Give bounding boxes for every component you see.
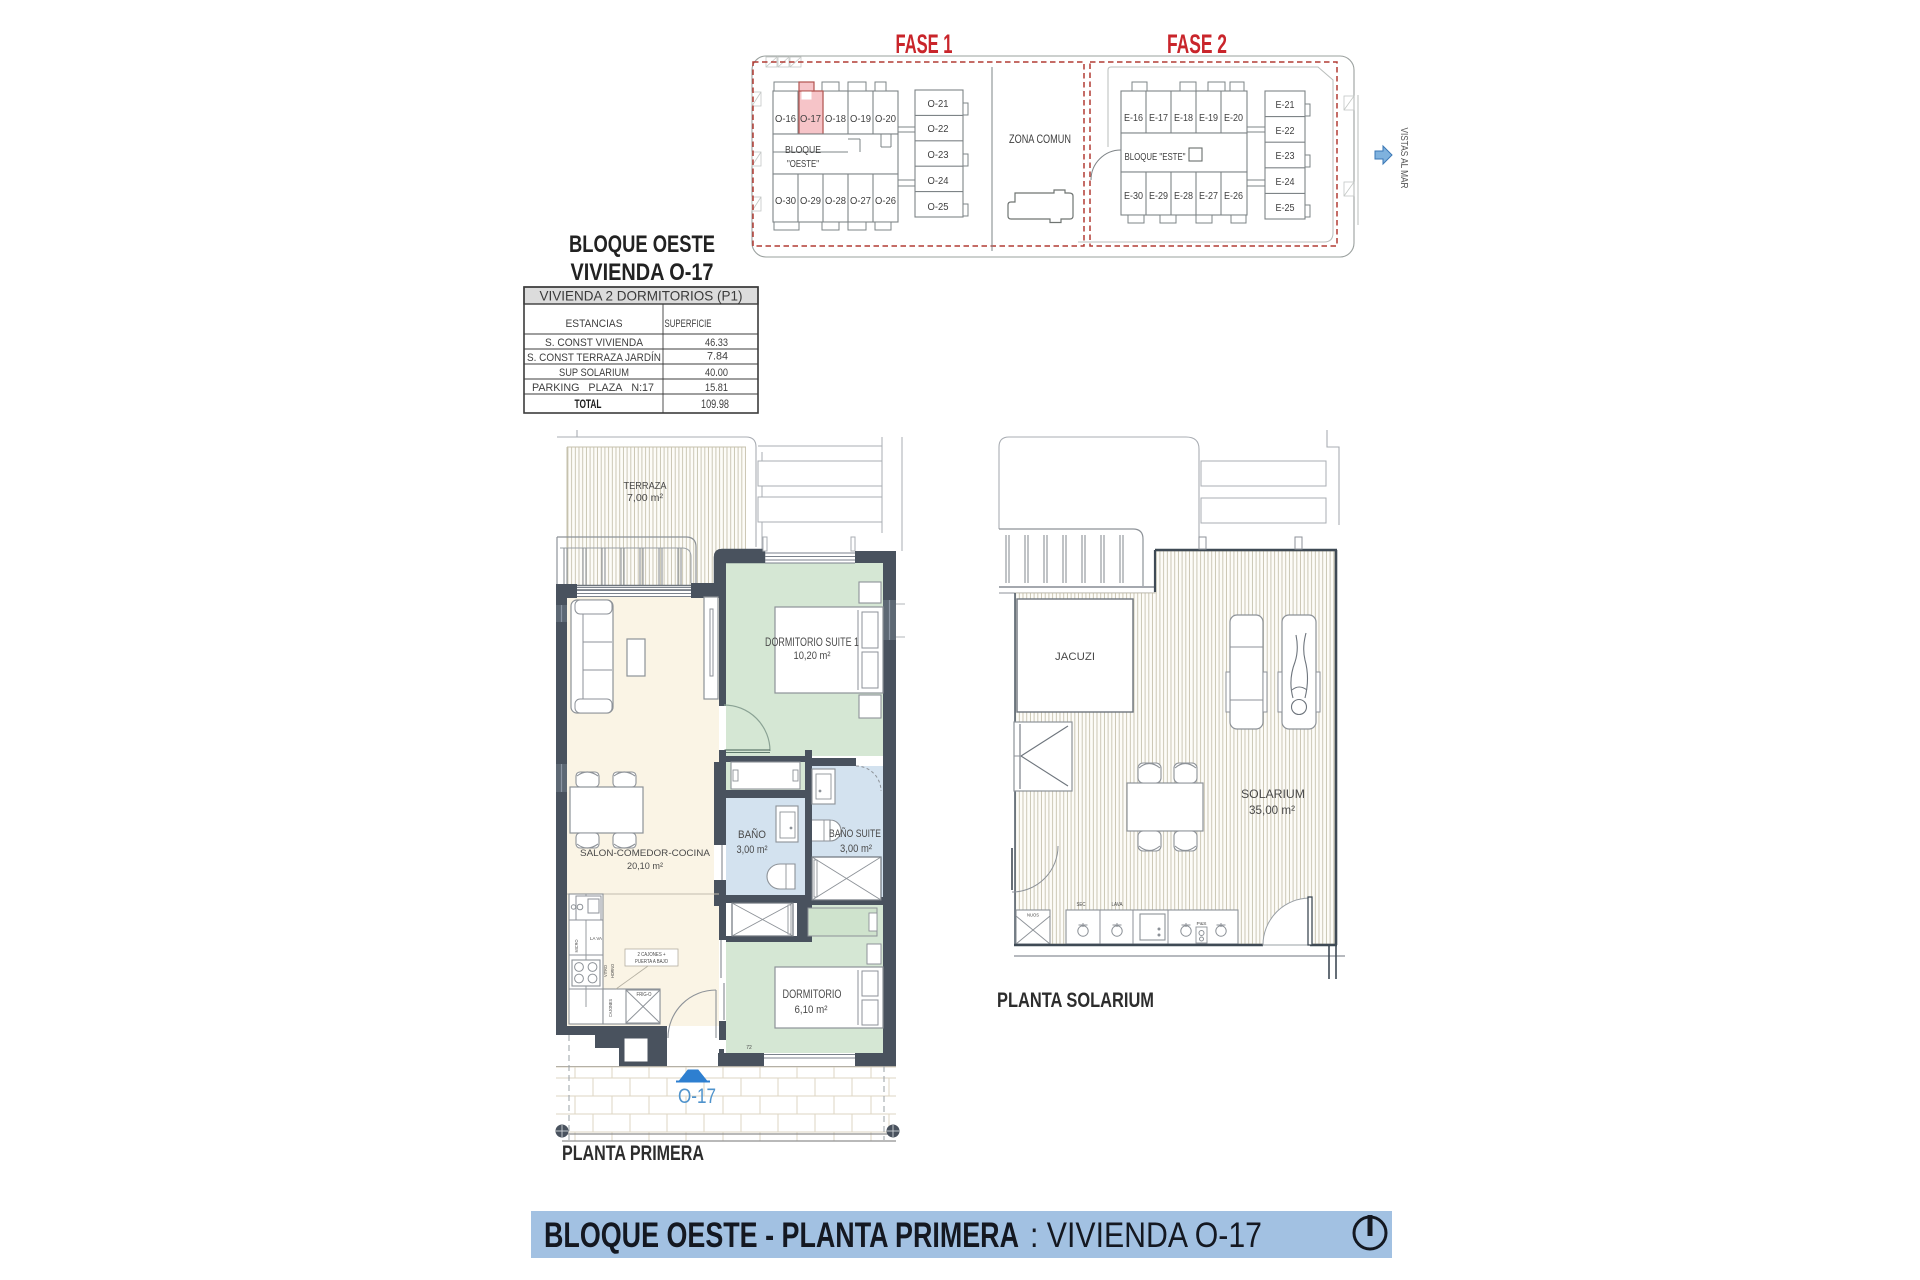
svg-text:3,00 m²: 3,00 m²: [840, 843, 872, 855]
svg-text:E-26: E-26: [1224, 191, 1243, 202]
svg-text:O-19: O-19: [850, 114, 871, 125]
svg-text:E-29: E-29: [1149, 191, 1168, 202]
svg-text:E-30: E-30: [1124, 191, 1143, 202]
svg-text:2 CAJONES +: 2 CAJONES +: [638, 952, 666, 958]
svg-text:E-18: E-18: [1174, 113, 1193, 124]
svg-text:"OESTE": "OESTE": [787, 158, 819, 170]
svg-text:PARKING PLAZA N:17: PARKING PLAZA N:17: [532, 382, 654, 394]
svg-text:E-21: E-21: [1276, 100, 1295, 111]
svg-text:O-29: O-29: [800, 196, 821, 207]
svg-text:E-25: E-25: [1276, 203, 1295, 214]
svg-text:O-24: O-24: [928, 176, 949, 187]
svg-text:JACUZI: JACUZI: [1055, 651, 1095, 663]
svg-text:BAÑO: BAÑO: [738, 828, 766, 841]
svg-text:7.84: 7.84: [707, 351, 728, 363]
svg-text:PUERTA A BAJO: PUERTA A BAJO: [635, 959, 668, 965]
svg-text:E-20: E-20: [1224, 113, 1243, 124]
svg-text:LA VA: LA VA: [590, 936, 603, 942]
svg-text:O-23: O-23: [928, 150, 949, 161]
svg-text:40.00: 40.00: [705, 367, 728, 379]
svg-text:O-16: O-16: [775, 114, 796, 125]
svg-text:109.98: 109.98: [701, 397, 729, 411]
svg-text:VITRO: VITRO: [603, 965, 609, 977]
svg-text:E-19: E-19: [1199, 113, 1218, 124]
svg-text:O-25: O-25: [928, 202, 949, 213]
svg-text:ZONA COMUN: ZONA COMUN: [1009, 134, 1071, 146]
svg-text:FASE 1: FASE 1: [896, 29, 953, 59]
svg-text:O-21: O-21: [928, 99, 949, 110]
svg-text:DORMITORIO: DORMITORIO: [783, 987, 842, 1001]
svg-text:E-27: E-27: [1199, 191, 1218, 202]
svg-text:E-17: E-17: [1149, 113, 1168, 124]
svg-text:BLOQUE: BLOQUE: [785, 144, 821, 156]
svg-text:MICRO: MICRO: [574, 939, 580, 952]
svg-text:SUPERFICIE: SUPERFICIE: [665, 318, 712, 330]
svg-text:LAVA: LAVA: [1112, 902, 1124, 908]
svg-text:FRIG-O: FRIG-O: [637, 992, 652, 998]
svg-text:CAJONES: CAJONES: [608, 999, 614, 1017]
svg-text:DORMITORIO SUITE 1: DORMITORIO SUITE 1: [765, 635, 859, 649]
svg-text:46.33: 46.33: [705, 337, 728, 349]
svg-text:SEC: SEC: [1077, 902, 1086, 908]
svg-text:BLOQUE "ESTE": BLOQUE "ESTE": [1125, 151, 1186, 163]
svg-text:NUOS: NUOS: [1027, 913, 1039, 919]
svg-text:72: 72: [746, 1045, 752, 1051]
svg-text:35,00 m²: 35,00 m²: [1249, 803, 1295, 817]
svg-text:: VIVIENDA O-17: : VIVIENDA O-17: [1030, 1216, 1262, 1255]
svg-text:6,10 m²: 6,10 m²: [795, 1004, 828, 1016]
svg-text:E-23: E-23: [1276, 151, 1295, 162]
svg-text:7,00 m²: 7,00 m²: [627, 493, 664, 504]
svg-text:BLOQUE OESTE - PLANTA PRIMERA: BLOQUE OESTE - PLANTA PRIMERA: [544, 1216, 1019, 1255]
svg-text:O-27: O-27: [850, 196, 871, 207]
svg-text:BAÑO SUITE: BAÑO SUITE: [829, 827, 881, 840]
svg-text:O-17: O-17: [678, 1085, 716, 1108]
svg-text:O-30: O-30: [775, 196, 796, 207]
svg-text:E-24: E-24: [1276, 177, 1295, 188]
svg-text:SOLARIUM: SOLARIUM: [1241, 787, 1305, 801]
svg-text:O-28: O-28: [825, 196, 846, 207]
svg-text:E-16: E-16: [1124, 113, 1143, 124]
svg-text:E-22: E-22: [1276, 126, 1295, 137]
svg-text:HORNO: HORNO: [610, 964, 616, 978]
svg-text:VIVIENDA O-17: VIVIENDA O-17: [571, 259, 714, 286]
svg-text:E-28: E-28: [1174, 191, 1193, 202]
svg-text:VIVIENDA 2 DORMITORIOS (P1): VIVIENDA 2 DORMITORIOS (P1): [540, 288, 743, 304]
svg-text:PLANTA PRIMERA: PLANTA PRIMERA: [562, 1142, 704, 1165]
svg-text:SUP SOLARIUM: SUP SOLARIUM: [559, 367, 629, 379]
svg-text:O-22: O-22: [928, 124, 949, 135]
svg-text:O-17: O-17: [800, 114, 821, 125]
svg-text:FASE 2: FASE 2: [1167, 29, 1227, 59]
svg-text:20,10 m²: 20,10 m²: [627, 861, 663, 872]
svg-text:BLOQUE OESTE: BLOQUE OESTE: [569, 231, 715, 258]
svg-text:SALON-COMEDOR-COCINA: SALON-COMEDOR-COCINA: [580, 848, 711, 859]
svg-text:VISTAS AL MAR: VISTAS AL MAR: [1398, 128, 1409, 189]
svg-text:PLANTA SOLARIUM: PLANTA SOLARIUM: [997, 989, 1154, 1012]
svg-text:O-26: O-26: [875, 196, 896, 207]
svg-text:ESTANCIAS: ESTANCIAS: [566, 318, 623, 330]
svg-text:15.81: 15.81: [705, 382, 728, 394]
svg-text:S. CONST VIVIENDA: S. CONST VIVIENDA: [545, 337, 644, 349]
svg-text:O-20: O-20: [875, 114, 896, 125]
svg-text:TERRAZA: TERRAZA: [624, 481, 667, 492]
svg-text:10,20 m²: 10,20 m²: [794, 650, 831, 662]
svg-text:S. CONST TERRAZA JARDÍN: S. CONST TERRAZA JARDÍN: [527, 351, 661, 364]
svg-text:TOTAL: TOTAL: [575, 397, 602, 411]
svg-text:P&S: P&S: [1197, 921, 1207, 926]
svg-text:O-18: O-18: [825, 114, 846, 125]
svg-text:3,00 m²: 3,00 m²: [737, 844, 768, 856]
